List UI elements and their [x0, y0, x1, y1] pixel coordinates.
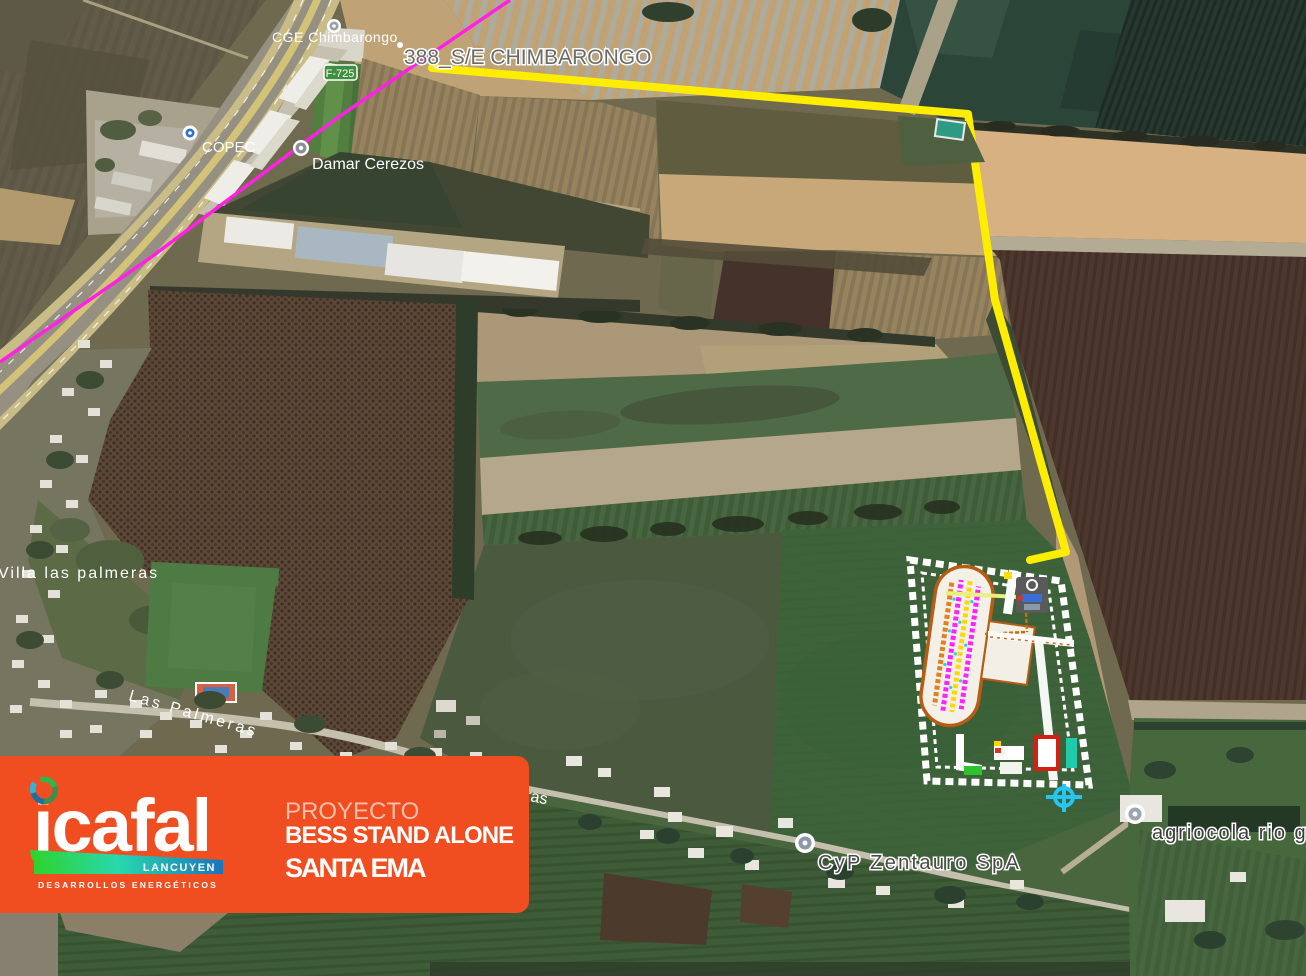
svg-text:CGE Chimbarongo: CGE Chimbarongo [272, 29, 398, 45]
svg-text:LANCUYEN: LANCUYEN [143, 862, 216, 874]
svg-text:Villa las palmeras: Villa las palmeras [0, 565, 159, 582]
svg-text:BESS STAND ALONE: BESS STAND ALONE [285, 822, 514, 849]
svg-text:388_S/E CHIMBARONGO: 388_S/E CHIMBARONGO [404, 46, 651, 69]
svg-text:COPEC: COPEC [202, 139, 256, 156]
svg-text:SANTA EMA: SANTA EMA [285, 853, 426, 883]
svg-text:agriocola rio g: agriocola rio g [1152, 822, 1306, 844]
svg-text:Damar Cerezos: Damar Cerezos [312, 156, 424, 173]
svg-text:DESARROLLOS ENERGÉTICOS: DESARROLLOS ENERGÉTICOS [38, 880, 218, 890]
svg-text:CyP Zentauro SpA: CyP Zentauro SpA [818, 852, 1021, 874]
svg-text:PROYECTO: PROYECTO [285, 798, 419, 825]
svg-text:F-725: F-725 [326, 68, 355, 80]
